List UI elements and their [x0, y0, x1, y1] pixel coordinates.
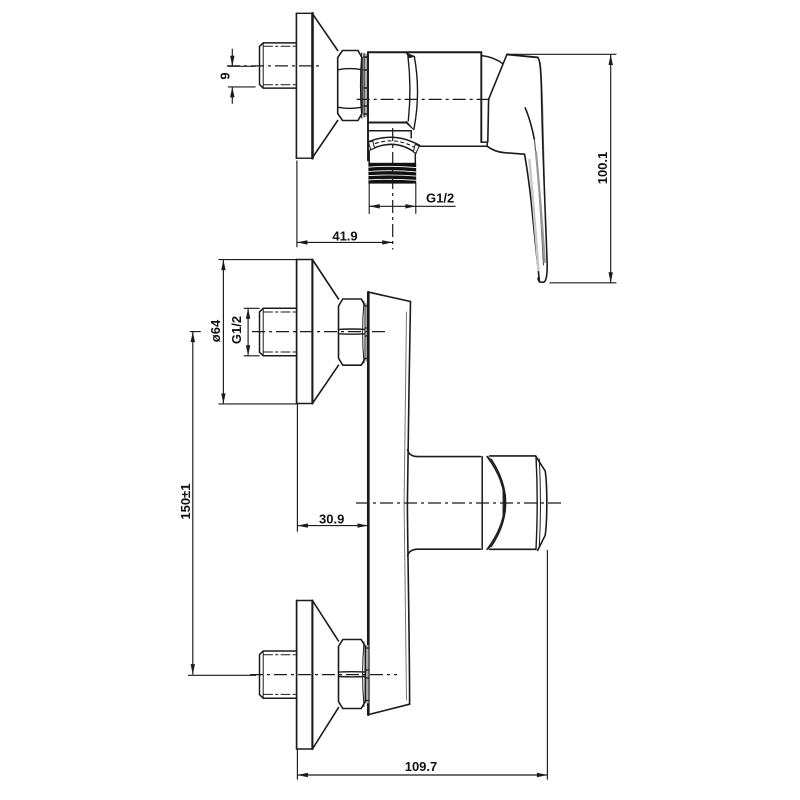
svg-text:30.9: 30.9 [319, 512, 344, 527]
svg-text:100.1: 100.1 [595, 152, 610, 185]
svg-text:109.7: 109.7 [405, 759, 438, 774]
svg-text:150±1: 150±1 [178, 484, 193, 520]
svg-text:G1/2: G1/2 [426, 191, 454, 206]
svg-text:9: 9 [218, 72, 233, 79]
svg-text:ø64: ø64 [208, 319, 223, 342]
svg-text:G1/2: G1/2 [229, 316, 244, 344]
svg-text:41.9: 41.9 [332, 228, 357, 243]
